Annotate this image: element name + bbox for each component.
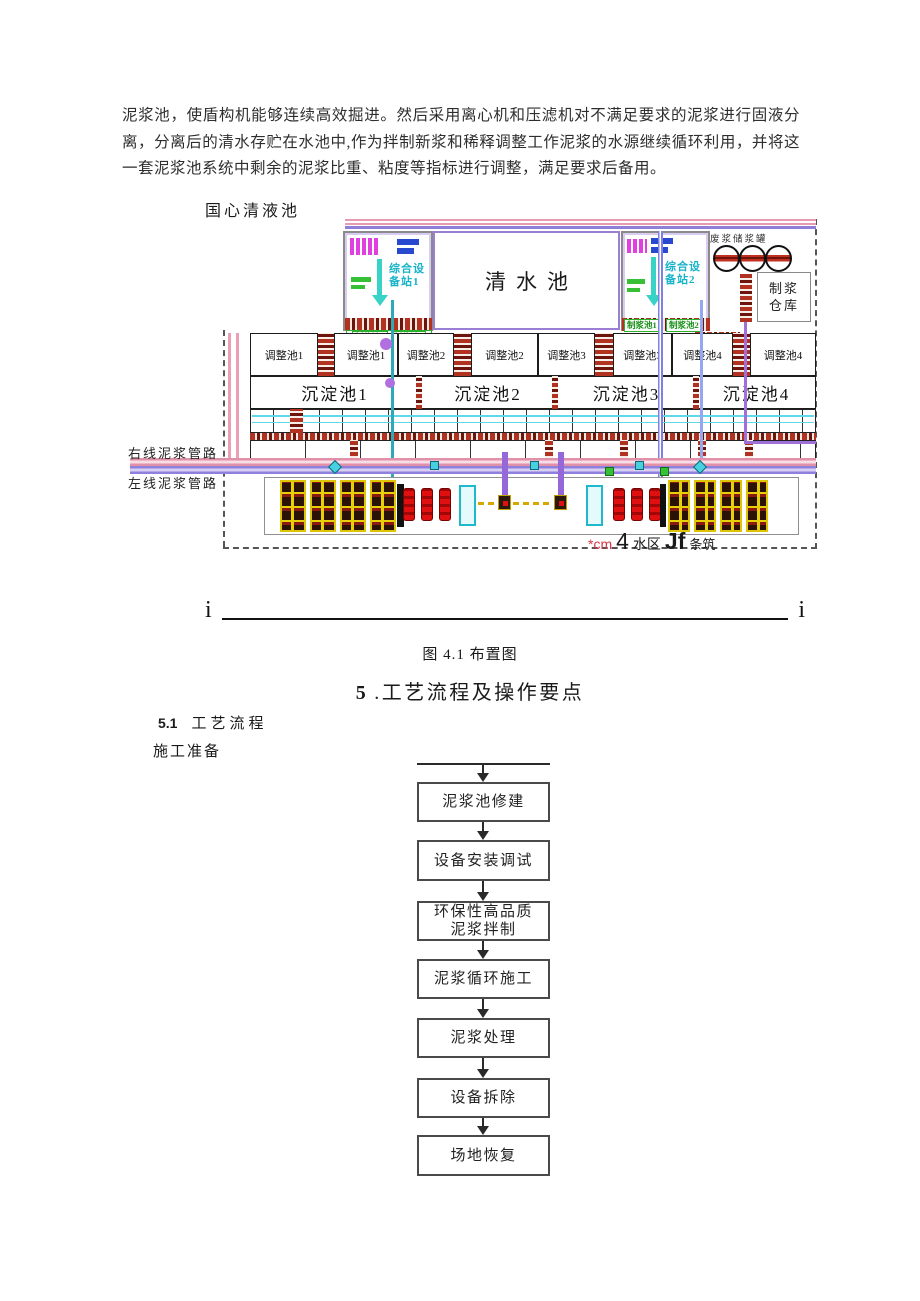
blue-drop-pipe [700,300,703,470]
sediment-pool-cell: 沉淀池2 [420,376,556,409]
filter-press-unit [459,485,476,526]
green-agitator [351,277,371,282]
sediment-pool-label: 沉淀池4 [723,380,791,405]
separation-machine [720,480,742,532]
pool-divider [454,333,471,376]
right-line-label: 右线泥浆管路 [128,443,218,462]
left-line-pipe [130,466,816,474]
sediment-pool-cell: 沉淀池4 [697,376,816,409]
adjust-pool-label: 调整池4 [764,347,803,363]
storage-tank [765,245,792,272]
adjust-pool-label: 调整池2 [485,347,524,363]
flow-arrowhead [477,773,489,782]
flow-step-label: 设备拆除 [450,1089,516,1107]
cyan-flow-arrow [651,257,656,297]
cyan-flow-arrowhead [372,295,388,306]
separation-machine [370,480,396,532]
separator-line [222,618,789,620]
filter-press-unit [586,485,603,526]
adjust-pool-label: 调整池1 [347,347,386,363]
flow-arrow [482,1058,484,1069]
sediment-pool-cell: 沉淀池3 [556,376,697,409]
clear-water-pool: 清水池 [433,231,620,330]
purple-elbow-pipe [744,441,816,444]
green-agitator [627,288,640,292]
yellow-link-pipe [478,502,497,505]
centrifuge-unit [403,488,415,521]
section-heading: 5.工艺流程及操作要点 [140,676,800,705]
purple-junction-node [385,378,395,388]
pump-indicator [559,501,564,506]
magenta-valve-block [350,238,380,255]
station-1-label: 综合设备站1 [389,263,431,289]
centrifuge-unit [613,488,625,521]
centrifuge-unit [439,488,451,521]
pipe-node [530,461,539,470]
storage-tank-label: 废浆储浆罐 [710,231,814,245]
flow-step-box: 泥浆处理 [417,1018,550,1058]
machine-end-cap [660,484,666,527]
flow-step-label: 场地恢复 [450,1147,516,1165]
centrifuge-unit [421,488,433,521]
separation-machine [668,480,690,532]
corner-note-jf: Jf [665,528,685,555]
mixing-pool-label: 制浆池2 [666,319,702,332]
adjust-pool-label: 调整池3 [547,347,586,363]
separation-machine [310,480,336,532]
pool-divider [733,333,750,376]
subsection-number: 5.1 [158,715,177,731]
flow-step-label: 环保性高品质泥浆拌制 [433,903,534,939]
sediment-pool-label: 沉淀池3 [593,380,661,405]
flow-step-box: 场地恢复 [417,1135,550,1176]
adjust-pool-cell: 调整池1 [250,333,318,376]
corner-note-suffix: 条筑 [689,534,715,553]
pipe-node [605,467,614,476]
adjust-pool-cell: 调整池4 [750,333,816,376]
diagram-top-label: 国心清液池 [205,197,300,221]
flow-arrow [482,999,484,1009]
separator-right-tick: i [798,597,805,624]
centrifuge-unit [631,488,643,521]
section-heading-text: .工艺流程及操作要点 [374,682,584,704]
adjust-pool-label: 调整池3 [623,347,662,363]
pool-divider [552,376,558,409]
pipe-node [635,461,644,470]
flow-arrowhead [477,1126,489,1135]
pool-divider [416,376,422,409]
station-2-label: 综合设备站2 [665,261,707,287]
flow-arrow [482,881,484,892]
purple-feed-drop [558,452,564,498]
adjust-pool-label: 调整池1 [265,347,304,363]
pink-feed-pipe [236,333,239,474]
purple-junction-node [380,338,392,350]
flow-step-box: 泥浆池修建 [417,782,550,822]
figure-caption: 图 4.1 布置图 [140,643,800,664]
flow-step-box: 设备拆除 [417,1078,550,1118]
top-purple-pipe [345,226,816,229]
diagram-frame-bottom [223,547,817,549]
adjust-pool-label: 调整池2 [407,347,446,363]
separation-machine [694,480,716,532]
separation-machine [280,480,306,532]
purple-elbow-pipe [744,322,747,443]
storage-tank [713,245,740,272]
blue-pump-block [397,248,414,254]
flow-step-box: 环保性高品质泥浆拌制 [417,901,550,941]
pink-feed-pipe [228,333,231,474]
subsection-title: 工艺流程 [191,716,267,732]
clear-water-pool-label: 清水池 [475,266,578,296]
cyan-flow-arrow [377,259,382,297]
diagram-frame-left [223,330,225,547]
sediment-pool-label: 沉淀池2 [454,380,522,405]
top-pink-pipe [345,219,816,225]
prep-step-label: 施工准备 [153,740,221,761]
adjust-pool-cell: 调整池2 [398,333,454,376]
channel-divider [290,409,303,433]
separation-machine [746,480,768,532]
flow-step-box: 设备安装调试 [417,840,550,881]
pump-indicator [503,501,508,506]
equipment-station-1: 综合设备站1 [343,231,433,331]
adjust-pool-cell: 调整池2 [471,333,538,376]
storage-tank [739,245,766,272]
mixing-pool-label: 制浆池1 [624,319,660,332]
pool-divider [318,333,334,376]
subsection-heading: 5.1工艺流程 [158,712,267,733]
flow-arrowhead [477,831,489,840]
left-line-label: 左线泥浆管路 [128,473,218,492]
flow-step-label: 泥浆池修建 [442,793,525,811]
yellow-link-pipe [513,502,553,505]
gallery-band [250,433,816,440]
corner-note: *cm 4 水区 Jf 条筑 [588,528,715,555]
flow-step-box: 泥浆循环施工 [417,959,550,999]
flow-arrow [482,765,484,773]
blue-pump-block [397,239,419,245]
water-channel-line [252,422,814,424]
purple-feed-drop [502,452,508,498]
slurry-warehouse: 制浆仓库 [757,272,811,322]
separation-machine [340,480,366,532]
pump-block [498,495,511,510]
flow-arrow [482,1118,484,1126]
flow-step-label: 泥浆循环施工 [434,970,533,988]
flow-arrow [482,941,484,950]
flow-arrowhead [477,1069,489,1078]
pump-block [554,495,567,510]
pipe-gallery [345,318,432,330]
water-channel-line [252,415,814,417]
pipe-node [430,461,439,470]
flow-start-line [417,763,550,765]
flow-arrowhead [477,892,489,901]
corner-note-area: 水区 [633,534,661,554]
slurry-warehouse-label: 制浆仓库 [769,280,799,314]
flow-arrow [482,822,484,831]
flow-arrowhead [477,950,489,959]
right-line-pipe [130,458,816,466]
adjust-pool-cell: 调整池3 [538,333,595,376]
separator-rule: i i [205,597,805,624]
flow-step-label: 泥浆处理 [450,1029,516,1047]
separator-left-tick: i [205,597,212,624]
corner-note-number: 4 [616,528,629,555]
section-heading-number: 5 [356,682,369,704]
magenta-valve-block [627,239,647,253]
flow-arrowhead [477,1009,489,1018]
corner-note-prefix: *cm [588,536,612,552]
sediment-pool-label: 沉淀池1 [301,380,369,405]
teal-drop-pipe [391,300,394,478]
equipment-station-2: 综合设备站2 [621,231,710,331]
pool-divider [595,333,613,376]
green-agitator [351,285,365,289]
pipe-gallery-column [740,274,752,322]
pipe-node [660,467,669,476]
adjust-pool-cell: 调整池3 [613,333,672,376]
layout-diagram: 国心清液池 综合设备站1 清水池 综合设备站2 废浆储浆罐 [0,0,920,600]
green-agitator [627,279,645,284]
pool-divider [693,376,699,409]
flow-step-label: 设备安装调试 [434,852,533,870]
